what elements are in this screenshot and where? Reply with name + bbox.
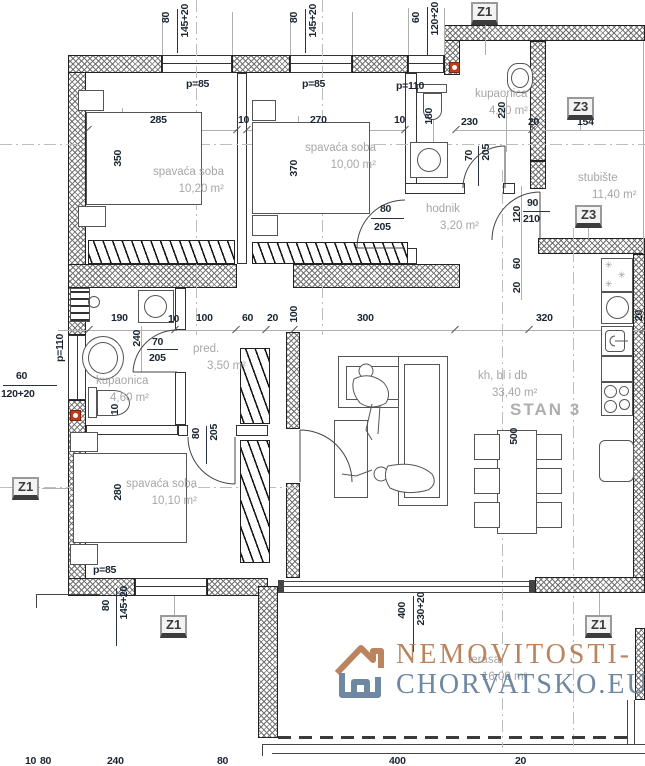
- snowflake-icon: ✳: [618, 270, 626, 281]
- wall: [503, 183, 515, 194]
- sink-basin: [511, 68, 529, 88]
- room-area: 33,40 m²: [478, 385, 537, 402]
- dim-label: 60: [511, 258, 523, 269]
- sliding-door: [278, 581, 535, 582]
- dim-label: 190: [111, 312, 128, 324]
- terrace-slab-line: [262, 744, 263, 756]
- nightstand: [70, 544, 98, 565]
- dim-label: 120: [511, 206, 523, 223]
- dim-label: 100: [196, 312, 213, 324]
- washing-machine-drum: [144, 295, 167, 318]
- fraction-bar: [427, 7, 428, 55]
- countertop: [601, 356, 633, 382]
- footing-line: [36, 594, 37, 608]
- wall: [86, 425, 178, 435]
- wall: [232, 55, 290, 73]
- wall: [633, 254, 645, 593]
- marker-leader: [485, 24, 486, 55]
- room-name: kupaonica: [96, 373, 149, 390]
- dim-label: 70: [463, 150, 475, 161]
- dim-label: 400: [396, 602, 408, 619]
- wall: [405, 183, 465, 194]
- dim-label: 270: [310, 114, 327, 126]
- dim-line: [456, 130, 645, 131]
- dim-label: p=110: [396, 80, 424, 92]
- kitchen-sink-basin: [605, 330, 625, 352]
- wardrobe: [240, 440, 270, 563]
- boiler-point: [70, 410, 81, 421]
- dim-label: 20: [267, 312, 278, 324]
- witness-line: [352, 12, 353, 55]
- nightstand: [252, 215, 278, 236]
- dim-label: 205: [374, 221, 391, 233]
- room-label-hall: hodnik 3,20 m²: [426, 201, 479, 234]
- nightstand: [78, 90, 104, 111]
- fraction-bar: [147, 349, 178, 350]
- dim-label: 220: [496, 102, 508, 119]
- room-name: pred.: [193, 341, 246, 358]
- dim-label: 205: [480, 144, 492, 161]
- marker-z1: Z1: [160, 615, 187, 638]
- terrace-dashed-edge: [278, 736, 630, 739]
- window: [290, 55, 352, 73]
- fraction-bar: [523, 211, 550, 212]
- radiator-valve: [88, 296, 100, 308]
- wall: [175, 372, 186, 425]
- wall: [286, 332, 300, 429]
- dim-label: 285: [150, 114, 167, 126]
- wall: [444, 25, 645, 41]
- dim-label: 60: [242, 312, 253, 324]
- room-area: 3,50 m²: [193, 358, 246, 375]
- dim-label: 20: [633, 310, 645, 321]
- dim-label: 205: [208, 424, 220, 441]
- dim-label: 145+20: [307, 4, 319, 38]
- dim-label: 400: [389, 755, 406, 766]
- towel-radiator: [70, 288, 90, 322]
- room-area: 10,00 m²: [305, 157, 376, 174]
- fraction-bar: [478, 146, 479, 186]
- apartment-label: STAN 3: [510, 400, 581, 420]
- snowflake-icon: ✳: [605, 260, 613, 271]
- marker-z3: Z3: [575, 205, 602, 228]
- marker-leader: [42, 488, 68, 489]
- room-name: spavaća soba: [153, 164, 224, 181]
- dim-label: 80: [288, 12, 300, 23]
- nightstand: [252, 100, 276, 121]
- watermark-line1: NEMOVITOSTI-: [396, 640, 645, 670]
- wall: [178, 425, 188, 436]
- marker-leader: [174, 596, 175, 615]
- marker-z1: Z1: [471, 2, 498, 25]
- fraction-bar: [305, 9, 306, 53]
- dim-label: 280: [112, 484, 124, 501]
- room-name: kh, bl i db: [478, 368, 537, 385]
- terrace-slab-line: [634, 700, 635, 745]
- wall: [352, 55, 408, 73]
- dim-label: 70: [152, 336, 163, 348]
- wardrobe: [252, 242, 408, 264]
- dim-label: 90: [527, 197, 538, 209]
- washing-machine-drum: [417, 148, 441, 172]
- room-label-bedroom2: spavaća soba 10,00 m²: [305, 140, 376, 173]
- room-name: spavaća soba: [305, 140, 376, 157]
- dim-label: 370: [288, 160, 300, 177]
- sliding-door-post: [278, 580, 284, 593]
- fraction-bar: [177, 9, 178, 53]
- watermark: NEMOVITOSTI- CHORVATSKO.EU: [334, 640, 645, 700]
- room-name: kupaonica: [475, 86, 528, 103]
- snowflake-icon: ✳: [605, 279, 613, 290]
- wall: [530, 41, 546, 161]
- room-area: 11,40 m²: [578, 187, 637, 204]
- dim-label: 20: [515, 755, 526, 766]
- dim-label: 60: [410, 12, 422, 23]
- dim-label: 100: [288, 306, 300, 323]
- room-name: hodnik: [426, 201, 479, 218]
- wall: [68, 264, 237, 288]
- dim-label: 230+20: [415, 592, 427, 626]
- wall: [530, 161, 546, 189]
- marker-z3: Z3: [567, 97, 594, 120]
- wall: [258, 586, 278, 738]
- chair: [536, 468, 562, 494]
- dim-label: 500: [508, 428, 520, 445]
- dim-label: 180: [423, 108, 435, 125]
- nightstand: [78, 206, 106, 227]
- dim-label: 320: [536, 312, 553, 324]
- dim-label: 10: [168, 313, 179, 325]
- burner: [619, 386, 629, 396]
- witness-line: [232, 12, 233, 55]
- dim-label: 80: [190, 428, 202, 439]
- boiler-point: [449, 62, 460, 73]
- room-area: 4,60 m²: [96, 390, 149, 407]
- room-label-bath-left: kupaonica 4,60 m²: [96, 373, 149, 406]
- sliding-door: [278, 592, 535, 593]
- dim-label: 120+20: [429, 2, 441, 36]
- coffee-table: [334, 420, 368, 498]
- marker-leader: [599, 593, 600, 615]
- terrace-slab-line: [262, 744, 645, 745]
- dim-label: 60: [16, 370, 27, 382]
- room-label-living: kh, bl i db 33,40 m²: [478, 368, 537, 401]
- fraction-bar: [3, 385, 57, 386]
- sliding-door-post: [529, 580, 535, 593]
- dining-table: [497, 430, 537, 534]
- chair: [474, 434, 500, 460]
- window: [162, 55, 232, 73]
- chair: [536, 434, 562, 460]
- dim-label: 210: [523, 213, 540, 225]
- dim-label: 240: [131, 330, 143, 347]
- marker-z1: Z1: [585, 615, 612, 638]
- dim-label: p=110: [54, 334, 66, 362]
- dim-label: 10: [25, 755, 36, 766]
- nightstand: [70, 432, 98, 452]
- dim-label: 300: [357, 312, 374, 324]
- wall: [286, 483, 300, 578]
- witness-line: [408, 8, 409, 55]
- house-logo-icon: [334, 640, 388, 700]
- burner: [604, 400, 617, 413]
- stair-edge-line: [643, 41, 644, 254]
- dim-label: 240: [107, 755, 124, 766]
- dim-label: 10: [394, 114, 405, 126]
- room-area: 10,10 m²: [126, 493, 197, 510]
- room-label-stairs: stubište 11,40 m²: [578, 170, 637, 203]
- wall: [535, 577, 645, 593]
- dim-label: 145+20: [179, 4, 191, 38]
- sink-basin: [88, 342, 118, 374]
- chair: [536, 502, 562, 528]
- dim-label: 205: [149, 352, 166, 364]
- dim-label: 350: [112, 150, 124, 167]
- burner: [604, 385, 617, 398]
- burner: [619, 399, 630, 410]
- terrace-slab-line: [272, 753, 645, 754]
- chair: [474, 502, 500, 528]
- dim-label: p=85: [186, 78, 209, 90]
- dim-label: 230: [461, 116, 478, 128]
- fraction-bar: [371, 218, 404, 219]
- room-label-bedroom3: spavaća soba 10,10 m²: [126, 476, 197, 509]
- fraction-bar: [206, 426, 207, 464]
- window: [135, 578, 207, 596]
- watermark-line2: CHORVATSKO.EU: [396, 670, 645, 700]
- witness-line: [444, 8, 445, 55]
- dim-label: 20: [511, 282, 523, 293]
- room-label-entry: pred. 3,50 m²: [193, 341, 246, 374]
- wall: [68, 55, 162, 73]
- wall: [293, 264, 460, 288]
- wall: [538, 238, 645, 254]
- dim-label: 80: [100, 600, 112, 611]
- dim-label: 80: [160, 12, 172, 23]
- dim-label: 20: [528, 116, 539, 128]
- dim-label: p=85: [302, 78, 325, 90]
- wardrobe: [88, 240, 235, 264]
- room-label-bedroom1: spavaća soba 10,20 m²: [153, 164, 224, 197]
- fridge: [599, 440, 634, 482]
- dim-line: [58, 330, 645, 331]
- dim-label: 145+20: [118, 586, 130, 620]
- dim-label: 120+20: [1, 388, 35, 400]
- room-name: stubište: [578, 170, 637, 187]
- dim-label: 80: [40, 755, 51, 766]
- sofa-seat: [404, 364, 440, 498]
- fraction-bar: [116, 588, 117, 646]
- room-area: 10,20 m²: [153, 181, 224, 198]
- wall: [236, 425, 268, 436]
- room-name: spavaća soba: [126, 476, 197, 493]
- sliding-door: [278, 586, 535, 587]
- dim-label: 10: [109, 404, 121, 415]
- room-area: 3,20 m²: [426, 218, 479, 235]
- dim-label: 10: [238, 114, 249, 126]
- marker-z1: Z1: [12, 477, 39, 500]
- dim-label: p=85: [93, 564, 116, 576]
- wall: [237, 73, 247, 264]
- chair: [474, 468, 500, 494]
- floor-plan: ✳ ✳ ✳ Z1: [0, 0, 645, 766]
- dim-label: 80: [380, 203, 391, 215]
- window: [408, 55, 444, 73]
- footing-line: [36, 594, 100, 595]
- washing-machine-drum: [606, 296, 629, 319]
- dim-label: 80: [217, 755, 228, 766]
